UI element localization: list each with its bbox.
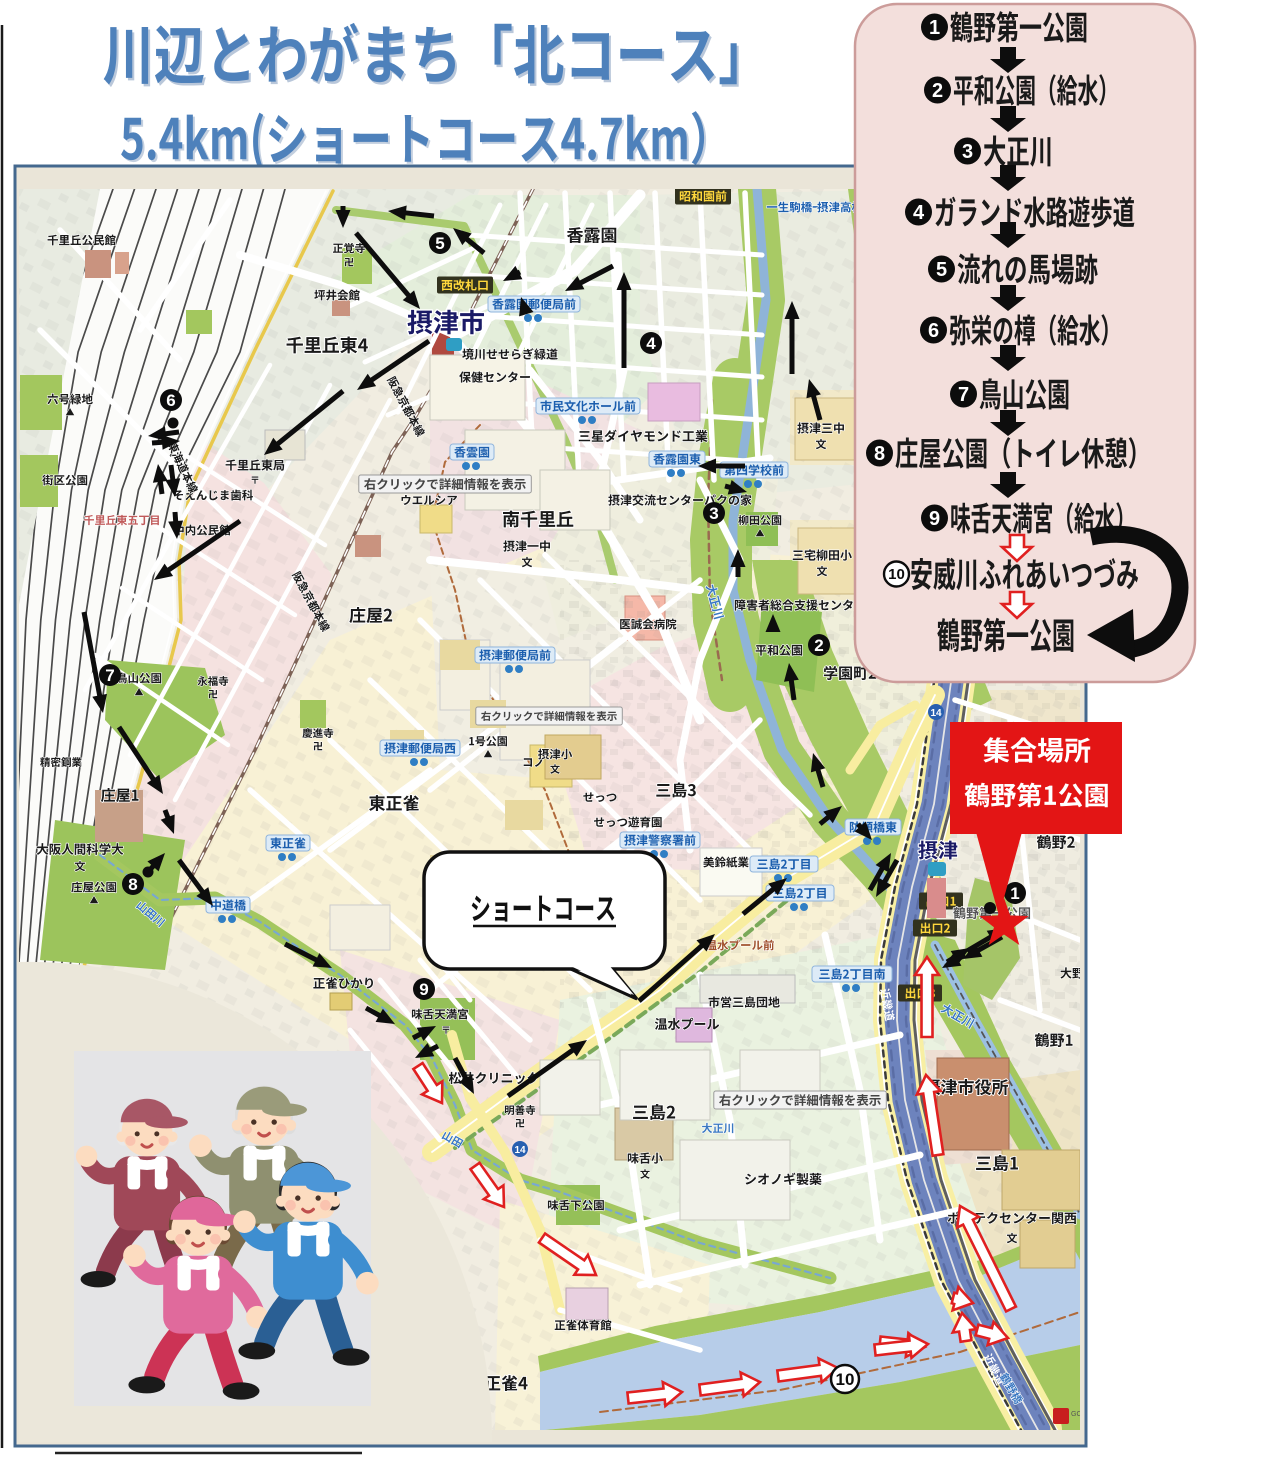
svg-text:5: 5 (936, 259, 947, 281)
svg-text:7: 7 (105, 666, 114, 685)
svg-text:1: 1 (929, 17, 940, 39)
svg-text:10: 10 (836, 1370, 855, 1389)
svg-text:4: 4 (913, 202, 925, 224)
svg-text:9: 9 (929, 508, 940, 530)
svg-text:3: 3 (962, 141, 973, 163)
svg-text:3: 3 (709, 504, 718, 523)
svg-text:7: 7 (958, 384, 969, 406)
svg-text:1: 1 (1010, 884, 1019, 903)
svg-text:8: 8 (128, 875, 137, 894)
svg-text:8: 8 (874, 443, 885, 465)
svg-text:14: 14 (930, 708, 942, 719)
svg-text:6: 6 (166, 391, 175, 410)
svg-text:5: 5 (435, 234, 444, 253)
svg-text:2: 2 (932, 80, 943, 102)
svg-text:6: 6 (928, 320, 939, 342)
svg-text:10: 10 (888, 566, 905, 583)
svg-text:4: 4 (646, 334, 656, 353)
svg-text:9: 9 (419, 980, 428, 999)
svg-text:14: 14 (514, 1145, 526, 1156)
svg-text:2: 2 (814, 636, 823, 655)
